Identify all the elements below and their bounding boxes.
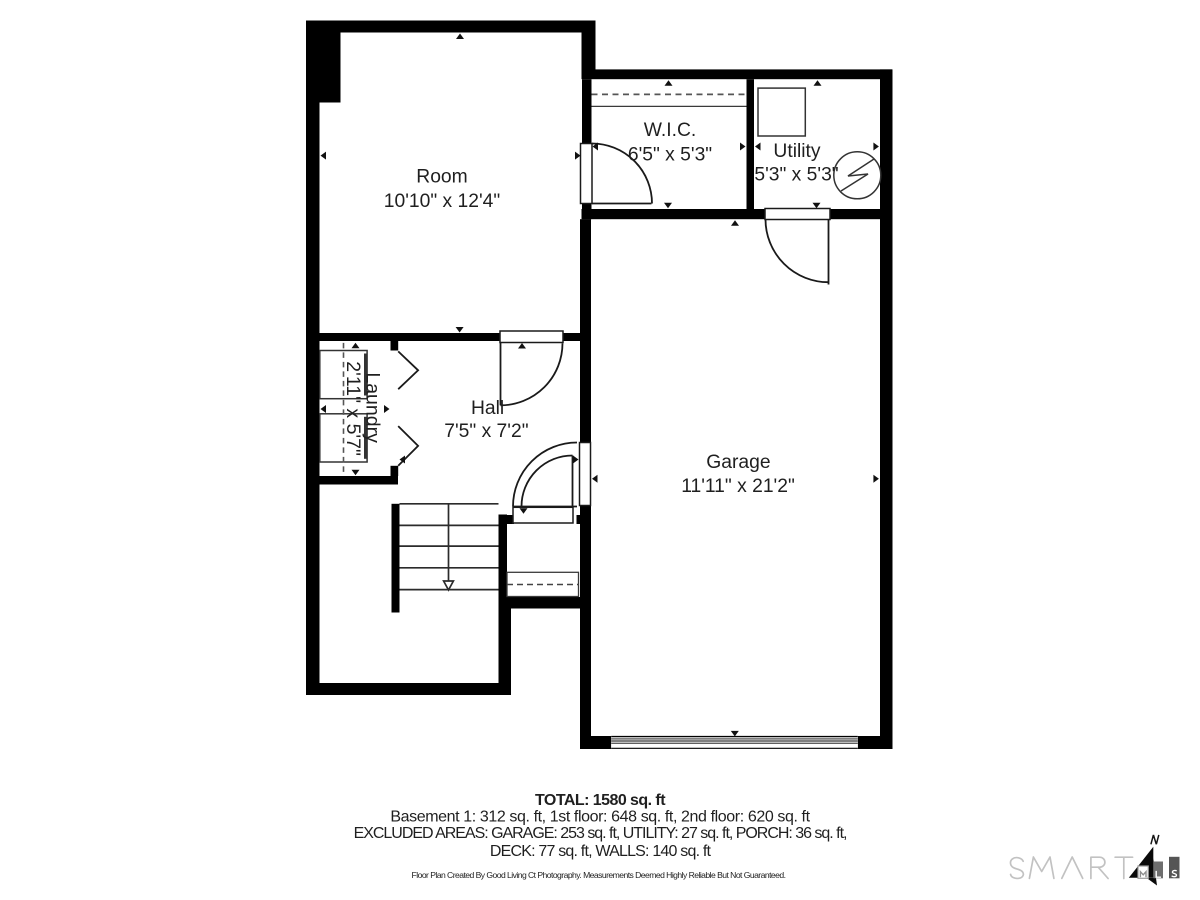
svg-text:Garage: Garage [706,452,770,473]
svg-text:10'10" x 12'4": 10'10" x 12'4" [384,191,501,212]
svg-text:EXCLUDED AREAS: GARAGE: 253 sq: EXCLUDED AREAS: GARAGE: 253 sq. ft, UTIL… [354,825,847,842]
svg-text:6'5" x 5'3": 6'5" x 5'3" [628,144,712,165]
svg-text:Basement 1: 312 sq. ft, 1st fl: Basement 1: 312 sq. ft, 1st floor: 648 s… [390,809,810,826]
svg-text:Hall: Hall [471,398,504,419]
svg-text:DECK: 77 sq. ft, WALLS: 140 sq: DECK: 77 sq. ft, WALLS: 140 sq. ft [490,843,712,860]
svg-text:2'11" x 5'7": 2'11" x 5'7" [342,361,364,456]
svg-text:11'11" x 21'2": 11'11" x 21'2" [681,476,795,497]
svg-text:Room: Room [416,167,467,188]
svg-text:5'3" x 5'3": 5'3" x 5'3" [754,165,838,186]
svg-text:Laundry: Laundry [362,372,384,443]
svg-text:TOTAL: 1580 sq. ft: TOTAL: 1580 sq. ft [535,792,666,809]
svg-text:Utility: Utility [773,141,820,162]
svg-text:7'5" x 7'2": 7'5" x 7'2" [444,421,528,442]
svg-text:Floor Plan Created By Good Liv: Floor Plan Created By Good Living Ct Pho… [412,870,786,880]
svg-text:W.I.C.: W.I.C. [644,120,697,141]
